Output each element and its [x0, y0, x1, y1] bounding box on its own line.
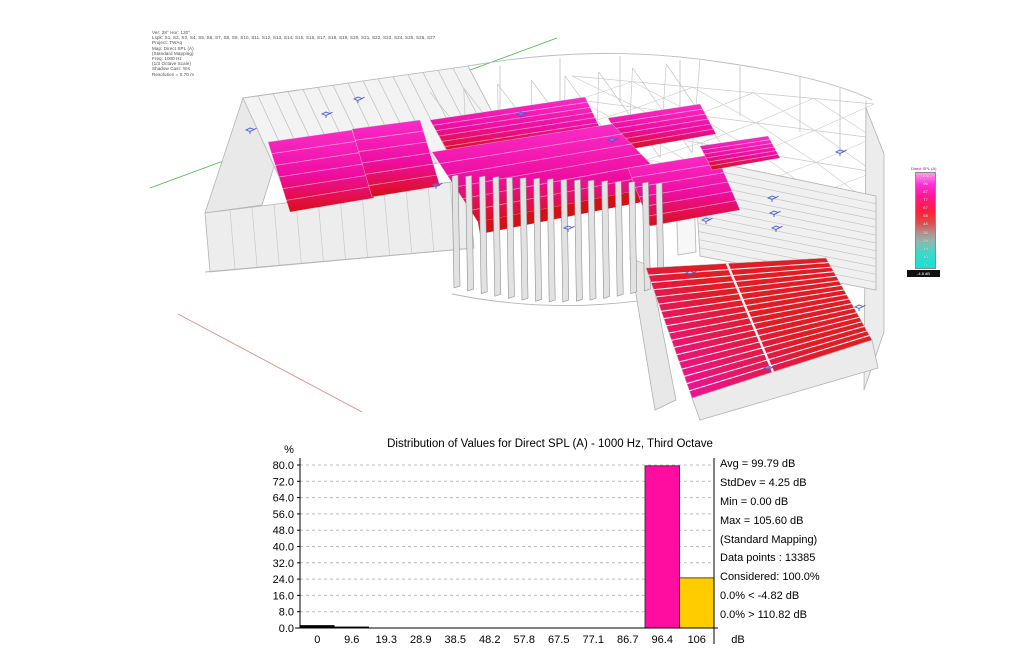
- svg-text:9.6: 9.6: [344, 634, 359, 646]
- svg-text:80.0: 80.0: [273, 460, 294, 472]
- svg-text:48.0: 48.0: [273, 525, 294, 537]
- svg-text:48.2: 48.2: [479, 634, 500, 646]
- statistics-primary: Avg = 99.79 dBStdDev = 4.25 dBMin = 0.00…: [720, 455, 817, 550]
- svg-text:64.0: 64.0: [273, 493, 294, 505]
- svg-text:8.0: 8.0: [279, 607, 294, 619]
- svg-text:57.8: 57.8: [514, 634, 535, 646]
- svg-text:28.9: 28.9: [410, 634, 431, 646]
- statistic-line: StdDev = 4.25 dB: [720, 474, 817, 493]
- svg-text:0.0: 0.0: [279, 623, 294, 635]
- svg-text:0: 0: [314, 634, 320, 646]
- svg-text:24.0: 24.0: [273, 574, 294, 586]
- svg-text:%: %: [284, 444, 294, 456]
- svg-text:67.5: 67.5: [548, 634, 569, 646]
- svg-text:106: 106: [688, 634, 706, 646]
- svg-text:56.0: 56.0: [273, 509, 294, 521]
- histogram-bar: [680, 578, 715, 628]
- svg-text:86.7: 86.7: [617, 634, 638, 646]
- svg-text:96.4: 96.4: [652, 634, 673, 646]
- statistic-line: Data points : 13385: [720, 549, 820, 568]
- ease-mapping-window: Ver: 28° Hor: 120°Lspk: S1, S2, S3, S4, …: [0, 0, 1024, 660]
- statistic-line: Max = 105.60 dB: [720, 512, 817, 531]
- svg-text:72.0: 72.0: [273, 476, 294, 488]
- statistic-line: 0.0% > 110.82 dB: [720, 606, 820, 625]
- statistic-line: Considered: 100.0%: [720, 568, 820, 587]
- distribution-histogram: 0.08.016.024.032.040.048.056.064.072.080…: [0, 0, 1024, 660]
- statistic-line: 0.0% < -4.82 dB: [720, 587, 820, 606]
- statistics-secondary: Data points : 13385Considered: 100.0%0.0…: [720, 549, 820, 625]
- statistic-line: Avg = 99.79 dB: [720, 455, 817, 474]
- svg-text:16.0: 16.0: [273, 590, 294, 602]
- svg-text:40.0: 40.0: [273, 542, 294, 554]
- svg-text:38.5: 38.5: [445, 634, 466, 646]
- statistic-line: (Standard Mapping): [720, 531, 817, 550]
- svg-text:32.0: 32.0: [273, 558, 294, 570]
- statistic-line: Min = 0.00 dB: [720, 493, 817, 512]
- svg-text:dB: dB: [731, 634, 744, 646]
- svg-text:19.3: 19.3: [376, 634, 397, 646]
- histogram-bar: [645, 466, 680, 628]
- svg-text:77.1: 77.1: [583, 634, 604, 646]
